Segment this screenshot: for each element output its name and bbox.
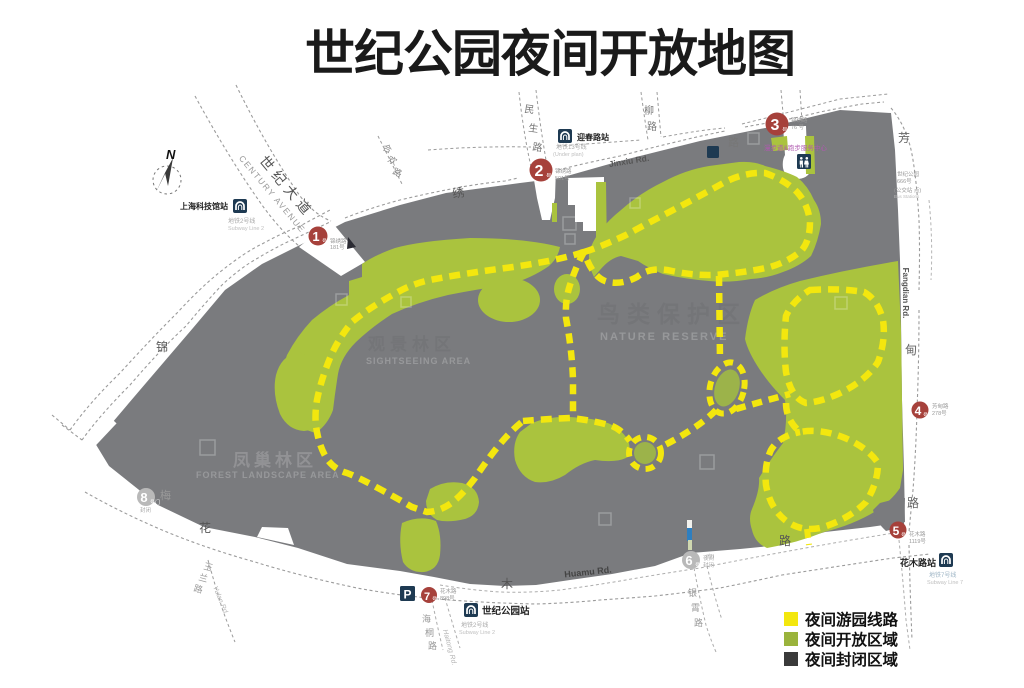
svg-text:2: 2 — [535, 163, 544, 180]
svg-text:花: 花 — [199, 520, 211, 535]
svg-text:(仅): (仅) — [706, 553, 715, 560]
svg-text:SIGHTSEEING AREA: SIGHTSEEING AREA — [366, 356, 471, 366]
svg-text:地铁2号线: 地铁2号线 — [461, 621, 488, 629]
svg-text:梅: 梅 — [160, 488, 171, 502]
svg-text:花木路: 花木路 — [440, 587, 457, 595]
svg-text:观景林区: 观景林区 — [367, 334, 456, 354]
svg-text:银: 银 — [688, 587, 697, 598]
svg-text:花木路: 花木路 — [909, 530, 926, 538]
svg-text:民: 民 — [524, 103, 536, 116]
svg-text:76 号: 76 号 — [791, 124, 805, 131]
svg-text:6: 6 — [685, 553, 692, 568]
svg-text:4: 4 — [915, 404, 922, 418]
svg-text:路: 路 — [694, 617, 703, 628]
svg-text:芳甸路: 芳甸路 — [932, 402, 949, 410]
svg-text:漫步道&跑步服务中心: 漫步道&跑步服务中心 — [764, 143, 827, 152]
svg-text:凤巢林区: 凤巢林区 — [233, 450, 317, 470]
svg-text:海: 海 — [422, 613, 431, 624]
svg-text:锦绣路: 锦绣路 — [555, 167, 572, 175]
svg-text:7: 7 — [424, 591, 430, 603]
svg-text:夜间游园线路: 夜间游园线路 — [804, 610, 899, 629]
svg-text:P: P — [403, 588, 411, 602]
svg-text:898号: 898号 — [440, 595, 455, 602]
svg-text:Subway Line 7: Subway Line 7 — [927, 580, 963, 586]
svg-text:路: 路 — [428, 640, 437, 651]
svg-text:3: 3 — [771, 117, 780, 134]
svg-text:桐: 桐 — [425, 627, 434, 638]
svg-text:1119号: 1119号 — [909, 538, 926, 545]
svg-text:路: 路 — [728, 136, 739, 149]
svg-text:世纪公园夜间开放地图: 世纪公园夜间开放地图 — [305, 26, 795, 82]
svg-text:花木路站: 花木路站 — [900, 557, 936, 568]
svg-text:181号: 181号 — [330, 244, 345, 251]
svg-text:5: 5 — [893, 524, 900, 538]
svg-text:世纪公园站: 世纪公园站 — [482, 605, 530, 617]
svg-text:FOREST LANDSCAPE AREA: FOREST LANDSCAPE AREA — [196, 470, 340, 480]
svg-text:NATURE RESERVE: NATURE RESERVE — [600, 331, 728, 343]
svg-text:路: 路 — [647, 120, 657, 133]
svg-text:地铁7号线: 地铁7号线 — [929, 571, 956, 579]
svg-text:1: 1 — [312, 229, 319, 244]
svg-text:锦绣路: 锦绣路 — [330, 237, 347, 245]
svg-text:锦: 锦 — [156, 340, 168, 354]
svg-text:夜间开放区域: 夜间开放区域 — [804, 630, 899, 649]
svg-text:地铁13号线: 地铁13号线 — [556, 143, 587, 151]
svg-text:Bus Stations: Bus Stations — [894, 194, 920, 199]
svg-text:278号: 278号 — [932, 410, 947, 417]
svg-text:Subway Line 2: Subway Line 2 — [459, 630, 495, 636]
svg-text:路: 路 — [907, 495, 919, 510]
svg-text:绣: 绣 — [451, 185, 465, 201]
svg-text:封闭: 封闭 — [703, 561, 714, 569]
svg-text:8: 8 — [140, 490, 147, 505]
svg-text:N: N — [166, 147, 176, 162]
svg-text:号门: 号门 — [150, 499, 160, 506]
svg-text:木: 木 — [501, 577, 513, 591]
svg-text:(公交站 点): (公交站 点) — [894, 186, 921, 194]
svg-text:世纪公园: 世纪公园 — [897, 170, 920, 178]
svg-text:迎春路站: 迎春路站 — [577, 132, 609, 142]
svg-text:霄: 霄 — [691, 603, 700, 613]
svg-text:路: 路 — [779, 533, 791, 548]
svg-text:锦绣路: 锦绣路 — [791, 116, 808, 124]
svg-text:上海科技馆站: 上海科技馆站 — [180, 201, 228, 211]
svg-text:(Under plan): (Under plan) — [553, 152, 584, 158]
svg-text:Fangdian Rd.: Fangdian Rd. — [901, 268, 910, 319]
svg-text:甸: 甸 — [905, 343, 917, 357]
svg-text:夜间封闭区域: 夜间封闭区域 — [804, 650, 899, 669]
svg-text:鸟类保护区: 鸟类保护区 — [597, 301, 747, 327]
svg-text:芳: 芳 — [898, 131, 910, 145]
svg-text:666号: 666号 — [897, 178, 912, 185]
svg-text:501号: 501号 — [555, 175, 570, 182]
svg-text:柳: 柳 — [644, 104, 654, 117]
svg-text:Subway Line 2: Subway Line 2 — [228, 226, 264, 232]
svg-text:地铁2号线: 地铁2号线 — [228, 217, 255, 225]
svg-text:封闭: 封闭 — [140, 506, 151, 514]
